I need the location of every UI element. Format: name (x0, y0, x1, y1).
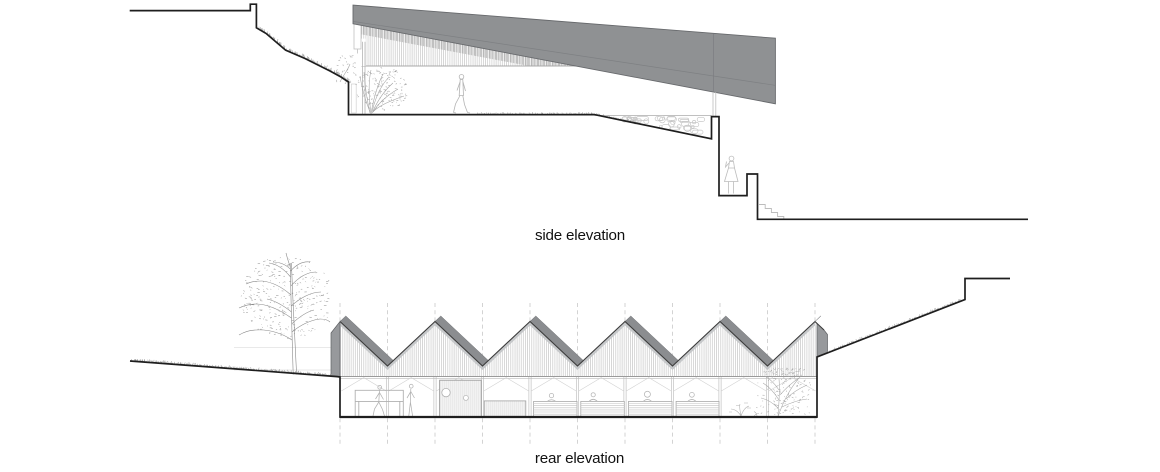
svg-text:rear elevation: rear elevation (535, 450, 624, 467)
svg-text:side elevation: side elevation (535, 227, 625, 244)
